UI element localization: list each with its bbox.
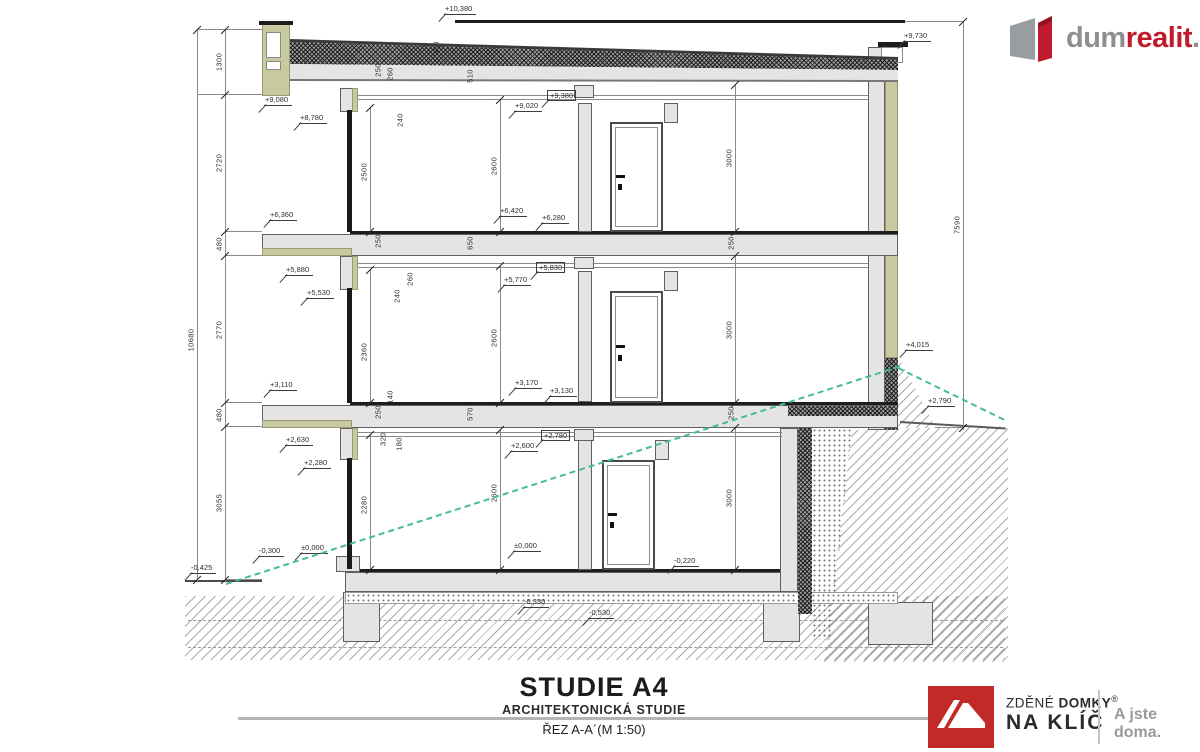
dimension-line bbox=[935, 427, 963, 428]
dimension-line bbox=[735, 256, 736, 403]
elevation-label: +2,780 bbox=[541, 430, 570, 441]
zdene-domky-line2: NA KLÍČ bbox=[1006, 711, 1104, 735]
elevation-tick-icon bbox=[279, 444, 287, 453]
zdene-domky-logo[interactable]: ZDĚNÉ DOMKY® NA KLÍČ A jste doma. bbox=[928, 686, 1198, 750]
elevation-label: -0,330 bbox=[523, 597, 549, 608]
dimension-label: 260 bbox=[406, 272, 415, 286]
elevation-tick-icon bbox=[667, 565, 675, 574]
elevation-tick-icon bbox=[438, 13, 446, 22]
elevation-label: -0,530 bbox=[588, 608, 614, 619]
elevation-label: +3,130 bbox=[549, 386, 577, 397]
elevation-tick-icon bbox=[293, 122, 301, 131]
dimension-line bbox=[225, 255, 262, 256]
elevation-tick-icon bbox=[921, 405, 929, 414]
elevation-tick-icon bbox=[535, 222, 543, 231]
dimension-label: 240 bbox=[393, 289, 402, 303]
dimension-line bbox=[225, 30, 226, 582]
dimension-label: 3000 bbox=[725, 489, 734, 507]
dimension-label: 250 bbox=[374, 234, 383, 248]
elevation-tick-icon bbox=[543, 395, 551, 404]
elevation-label: +9,020 bbox=[514, 101, 542, 112]
elevation-tick-icon bbox=[507, 550, 515, 559]
elevation-tick-icon bbox=[252, 555, 260, 564]
elevation-label: +9,380 bbox=[547, 90, 576, 101]
brand-word-realit: realit bbox=[1126, 22, 1192, 54]
elevation-tick-icon bbox=[899, 349, 907, 358]
elevation-label: -0,220 bbox=[673, 556, 699, 567]
elevation-label: +2,630 bbox=[285, 435, 313, 446]
dimension-line bbox=[500, 430, 501, 570]
brand-word-dum: dum bbox=[1066, 22, 1126, 54]
dimension-label: 2720 bbox=[215, 154, 224, 172]
dimension-label: 180 bbox=[395, 437, 404, 451]
dimension-label: 3055 bbox=[215, 494, 224, 512]
dimension-label: 260 bbox=[386, 67, 395, 81]
registered-mark: ® bbox=[1111, 694, 1118, 704]
elevation-label: +3,110 bbox=[269, 380, 297, 391]
dimension-label: 650 bbox=[466, 236, 475, 250]
elevation-label: +5,880 bbox=[285, 265, 313, 276]
dimension-line bbox=[370, 435, 371, 570]
elevation-tick-icon bbox=[279, 274, 287, 283]
elevation-label: +6,420 bbox=[499, 206, 527, 217]
dimension-label: 2360 bbox=[360, 343, 369, 361]
dimension-line bbox=[225, 231, 262, 232]
elevation-label: +2,600 bbox=[510, 441, 538, 452]
elevation-label: +9,730 bbox=[903, 31, 931, 42]
elevation-label: +4,015 bbox=[905, 340, 933, 351]
dimension-label: 320 bbox=[379, 432, 388, 446]
dimension-label: 480 bbox=[215, 408, 224, 422]
dimension-label: 350 bbox=[432, 41, 441, 55]
elevation-tick-icon bbox=[517, 606, 525, 615]
elevation-label: +5,530 bbox=[306, 288, 334, 299]
dimension-label: 510 bbox=[466, 69, 475, 83]
elevation-tick-icon bbox=[541, 99, 549, 108]
elevation-label: +2,790 bbox=[927, 396, 955, 407]
dimension-label: 1300 bbox=[215, 53, 224, 71]
dimension-line bbox=[225, 426, 262, 427]
dimension-line bbox=[905, 21, 963, 22]
elevation-tick-icon bbox=[582, 617, 590, 626]
brand-word-cz: .cz bbox=[1192, 22, 1200, 54]
zdene-domky-line1: ZDĚNÉ DOMKY® bbox=[1006, 694, 1118, 711]
dimension-label: 570 bbox=[466, 407, 475, 421]
architectural-section-sheet: 1068013002720480277048030557590250026003… bbox=[0, 0, 1200, 752]
dimension-line bbox=[370, 108, 371, 232]
elevation-tick-icon bbox=[297, 467, 305, 476]
elevation-tick-icon bbox=[897, 40, 905, 49]
dimension-line bbox=[370, 270, 371, 403]
dimension-line bbox=[735, 428, 736, 570]
dimension-label: 250 bbox=[374, 405, 383, 419]
dimension-label: 250 bbox=[727, 236, 736, 250]
elevation-tick-icon bbox=[263, 219, 271, 228]
dimension-label: 3000 bbox=[725, 149, 734, 167]
elevation-label: ±0,000 bbox=[513, 541, 541, 552]
elevation-label: +3,170 bbox=[514, 378, 542, 389]
annotation-layer: 1068013002720480277048030557590250026003… bbox=[0, 0, 1200, 752]
elevation-tick-icon bbox=[508, 110, 516, 119]
dimension-line bbox=[225, 402, 262, 403]
elevation-tick-icon bbox=[497, 284, 505, 293]
elevation-tick-icon bbox=[300, 297, 308, 306]
dimension-label: 250 bbox=[374, 63, 383, 77]
dimension-line bbox=[963, 22, 964, 430]
dimension-label: 2280 bbox=[360, 496, 369, 514]
dimension-label: 3000 bbox=[725, 321, 734, 339]
elevation-label: +6,360 bbox=[269, 210, 297, 221]
dimension-label: 2500 bbox=[360, 163, 369, 181]
elevation-tick-icon bbox=[504, 450, 512, 459]
zdene-domky-logo-mark bbox=[928, 686, 994, 748]
elevation-tick-icon bbox=[258, 104, 266, 113]
elevation-label: +9,080 bbox=[264, 95, 292, 106]
elevation-tick-icon bbox=[530, 271, 538, 280]
elevation-label: +5,830 bbox=[536, 262, 565, 273]
dimension-label: 2600 bbox=[490, 157, 499, 175]
elevation-label: +6,280 bbox=[541, 213, 569, 224]
dimension-label: 140 bbox=[386, 390, 395, 404]
elevation-tick-icon bbox=[508, 387, 516, 396]
dimension-label: 7590 bbox=[953, 216, 962, 234]
elevation-tick-icon bbox=[184, 572, 192, 581]
elevation-tick-icon bbox=[263, 389, 271, 398]
dimension-label: 240 bbox=[396, 113, 405, 127]
elevation-label: -0,300 bbox=[258, 546, 284, 557]
elevation-label: +8,780 bbox=[299, 113, 327, 124]
elevation-label: -0,425 bbox=[190, 563, 216, 574]
dumrealit-logo[interactable]: dumrealit.cz bbox=[1008, 14, 1194, 66]
dumrealit-logo-icon bbox=[1008, 16, 1062, 64]
dimension-line bbox=[197, 30, 198, 582]
elevation-label: +5,770 bbox=[503, 275, 531, 286]
dimension-line bbox=[197, 94, 263, 95]
dimension-label: 480 bbox=[215, 237, 224, 251]
dumrealit-logo-text: dumrealit.cz bbox=[1066, 22, 1200, 55]
dimension-line bbox=[197, 29, 263, 30]
elevation-label: +10,380 bbox=[444, 4, 476, 15]
elevation-label: +2,280 bbox=[303, 458, 331, 469]
logo-tagline: A jste doma. bbox=[1114, 706, 1198, 742]
logo-divider bbox=[1098, 690, 1100, 744]
dimension-label: 10680 bbox=[187, 329, 196, 352]
dimension-label: 2770 bbox=[215, 321, 224, 339]
dimension-label: 2600 bbox=[490, 329, 499, 347]
dimension-line bbox=[735, 85, 736, 232]
